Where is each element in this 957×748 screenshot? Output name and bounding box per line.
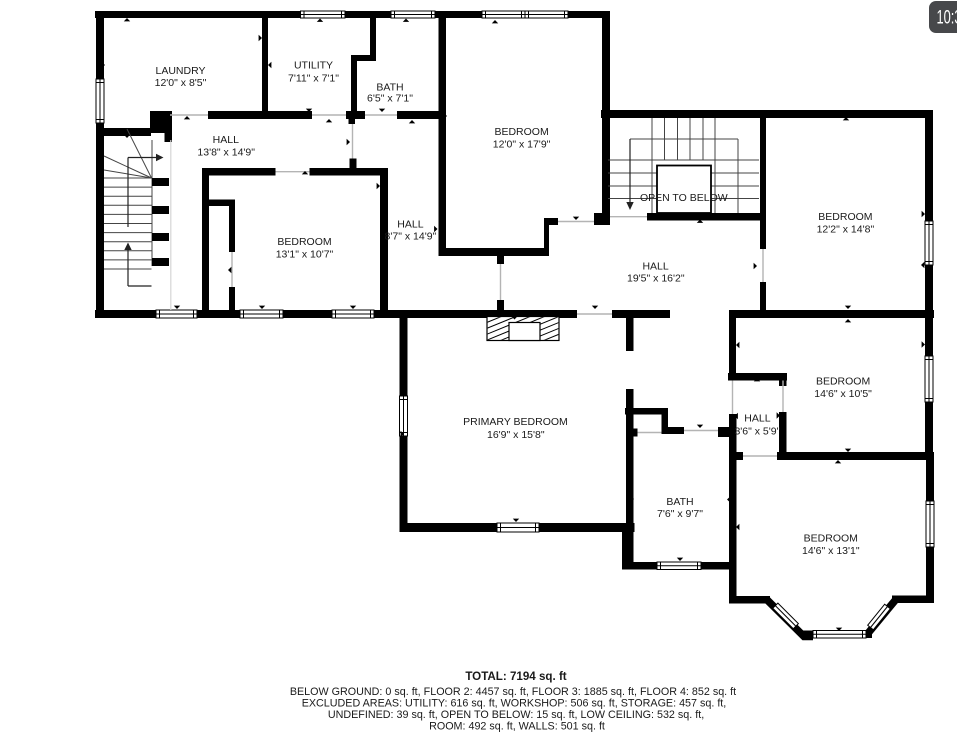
svg-text:UNDEFINED: 39 sq. ft, OPEN TO: UNDEFINED: 39 sq. ft, OPEN TO BELOW: 15 … (328, 709, 704, 721)
svg-text:13'8" x 14'9": 13'8" x 14'9" (197, 146, 255, 158)
svg-text:12'0" x 17'9": 12'0" x 17'9" (493, 138, 551, 150)
svg-text:HALL: HALL (397, 219, 423, 231)
svg-text:12'2" x 14'8": 12'2" x 14'8" (817, 224, 875, 236)
svg-text:6'5" x 7'1": 6'5" x 7'1" (367, 92, 413, 104)
svg-text:LAUNDRY: LAUNDRY (156, 65, 206, 77)
svg-text:7'6" x 9'7": 7'6" x 9'7" (657, 508, 703, 520)
svg-text:14'6" x 10'5": 14'6" x 10'5" (814, 388, 872, 400)
svg-text:BEDROOM: BEDROOM (818, 211, 872, 223)
svg-text:PRIMARY BEDROOM: PRIMARY BEDROOM (463, 416, 568, 428)
svg-text:12'0" x 8'5": 12'0" x 8'5" (155, 77, 207, 89)
svg-text:7'11" x 7'1": 7'11" x 7'1" (288, 73, 339, 85)
svg-text:8'7" x 14'9": 8'7" x 14'9" (385, 230, 437, 242)
svg-text:ROOM: 492 sq. ft, WALLS: 501 s: ROOM: 492 sq. ft, WALLS: 501 sq. ft (429, 720, 605, 732)
svg-text:UTILITY: UTILITY (294, 60, 333, 72)
svg-text:BEDROOM: BEDROOM (816, 375, 870, 387)
svg-text:10:3: 10:3 (937, 7, 957, 29)
svg-text:16'9" x 15'8": 16'9" x 15'8" (487, 429, 545, 441)
svg-text:3'6" x 5'9": 3'6" x 5'9" (734, 426, 780, 438)
svg-text:BEDROOM: BEDROOM (277, 236, 331, 248)
svg-text:BATH: BATH (666, 496, 693, 508)
svg-text:BEDROOM: BEDROOM (804, 533, 858, 545)
svg-text:HALL: HALL (744, 412, 770, 424)
svg-text:14'6" x 13'1": 14'6" x 13'1" (802, 545, 860, 557)
svg-text:BELOW GROUND: 0 sq. ft, FLOOR: BELOW GROUND: 0 sq. ft, FLOOR 2: 4457 sq… (290, 686, 736, 698)
svg-text:13'1" x 10'7": 13'1" x 10'7" (276, 248, 334, 260)
svg-text:EXCLUDED AREAS: UTILITY: 616 s: EXCLUDED AREAS: UTILITY: 616 sq. ft, WOR… (302, 697, 727, 709)
svg-text:HALL: HALL (642, 260, 668, 272)
svg-text:HALL: HALL (213, 134, 239, 146)
svg-text:TOTAL: 7194 sq. ft: TOTAL: 7194 sq. ft (465, 670, 566, 683)
svg-text:OPEN TO BELOW: OPEN TO BELOW (640, 192, 728, 204)
svg-text:BEDROOM: BEDROOM (494, 126, 548, 138)
svg-text:19'5" x 16'2": 19'5" x 16'2" (627, 273, 685, 285)
